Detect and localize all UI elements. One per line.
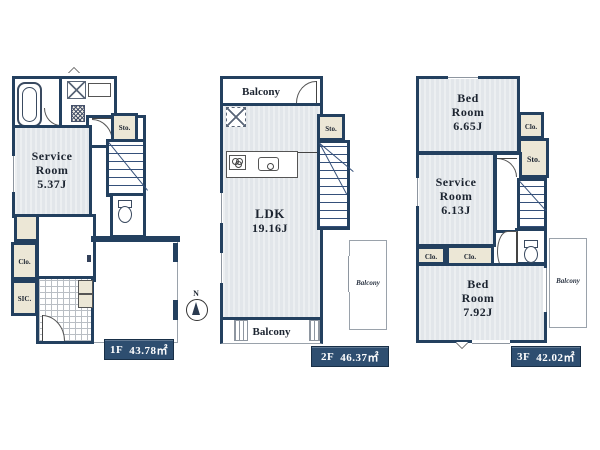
ldk-label: LDK 19.16J <box>240 207 300 236</box>
floor-name: 1F <box>110 344 123 356</box>
outdoor-right-pillar <box>173 243 178 262</box>
balcony-vent <box>234 320 248 341</box>
closet-top-3f: Clo. <box>518 112 544 139</box>
closet-left-1f-label: Clo. <box>14 258 35 266</box>
stairs-3f <box>517 178 547 230</box>
window <box>218 253 223 283</box>
outdoor-right-pillar <box>173 300 178 320</box>
window <box>448 74 478 79</box>
stove-icon <box>229 155 246 170</box>
vent-marker <box>456 342 468 348</box>
window <box>472 340 510 345</box>
shoe-in-closet-1f: SIC. <box>11 280 38 316</box>
closet-top-3f-label: Clo. <box>521 123 541 131</box>
toilet-icon <box>118 206 132 223</box>
door-leaf <box>497 158 517 159</box>
floor-plan-2f: Balcony LDK 19.16J Sto. Balcony Balcony <box>210 0 400 450</box>
washbasin-icon <box>71 105 85 122</box>
floor-area-label-2f: 2F 46.37㎡ <box>311 346 389 367</box>
floor-name: 3F <box>517 351 530 363</box>
outdoor-top-wall <box>91 236 180 242</box>
compass-needle <box>192 302 200 315</box>
vanity-icon <box>88 83 111 97</box>
floor-plan-3f: Bed Room 6.65J Clo. Sto. Service Room 6.… <box>400 0 600 450</box>
door-marker <box>87 255 91 262</box>
storage-3f: Sto. <box>518 138 549 178</box>
corridor-1f <box>36 214 96 282</box>
door-leaf <box>92 118 113 119</box>
floor-name: 2F <box>321 351 334 363</box>
floor-area: 43.78㎡ <box>129 342 168 358</box>
balcony-right-3f-label: Balcony <box>550 277 586 285</box>
shoe-in-closet-label: SIC. <box>14 295 35 303</box>
floor-area: 42.02㎡ <box>536 349 575 365</box>
storage-1f-label: Sto. <box>114 124 135 132</box>
window <box>543 268 549 312</box>
bed-room-1-label: Bed Room 6.65J <box>440 92 496 133</box>
compass-north-label: N <box>186 289 206 298</box>
shoe-cabinet <box>78 294 93 308</box>
bed-room-2-label: Bed Room 7.92J <box>450 278 506 319</box>
storage-3f-label: Sto. <box>521 155 546 164</box>
door-leaf <box>42 315 43 341</box>
sink-icon <box>258 157 279 171</box>
floor-area-label-1f: 1F 43.78㎡ <box>104 339 174 360</box>
vent-marker <box>68 68 80 74</box>
closet-left-1f: Clo. <box>11 242 38 280</box>
door-leaf <box>316 81 317 103</box>
window <box>10 156 15 192</box>
balcony-right-3f: Balcony <box>549 238 587 328</box>
balcony-top-2f-label: Balcony <box>231 86 291 99</box>
window <box>345 256 351 292</box>
balcony-right-2f-label: Balcony <box>350 279 386 287</box>
floor-area: 46.37㎡ <box>340 349 379 365</box>
service-room-3f-label: Service Room 6.13J <box>420 176 492 217</box>
storage-2f-label: Sto. <box>320 125 342 133</box>
window <box>218 193 223 223</box>
storage-1f: Sto. <box>111 113 138 142</box>
balcony-vent <box>309 320 320 341</box>
storage-2f: Sto. <box>317 114 345 141</box>
balcony-right-2f: Balcony <box>349 240 387 330</box>
service-room-1f-label: Service Room 5.37J <box>16 150 88 191</box>
closet-a-3f-label: Clo. <box>419 253 443 261</box>
floor-plan-1f: Sto. Service Room 5.37J Clo. Clo. SIC. 1… <box>0 0 210 450</box>
bathtub-icon <box>17 82 42 127</box>
toilet-icon <box>524 246 538 263</box>
shoe-cabinet <box>78 280 93 294</box>
floor-area-label-3f: 3F 42.02㎡ <box>511 346 581 367</box>
refrigerator-space-icon <box>226 107 246 127</box>
washing-machine-icon <box>67 81 86 99</box>
window <box>414 178 419 206</box>
closet-b-3f-label: Clo. <box>449 253 491 261</box>
